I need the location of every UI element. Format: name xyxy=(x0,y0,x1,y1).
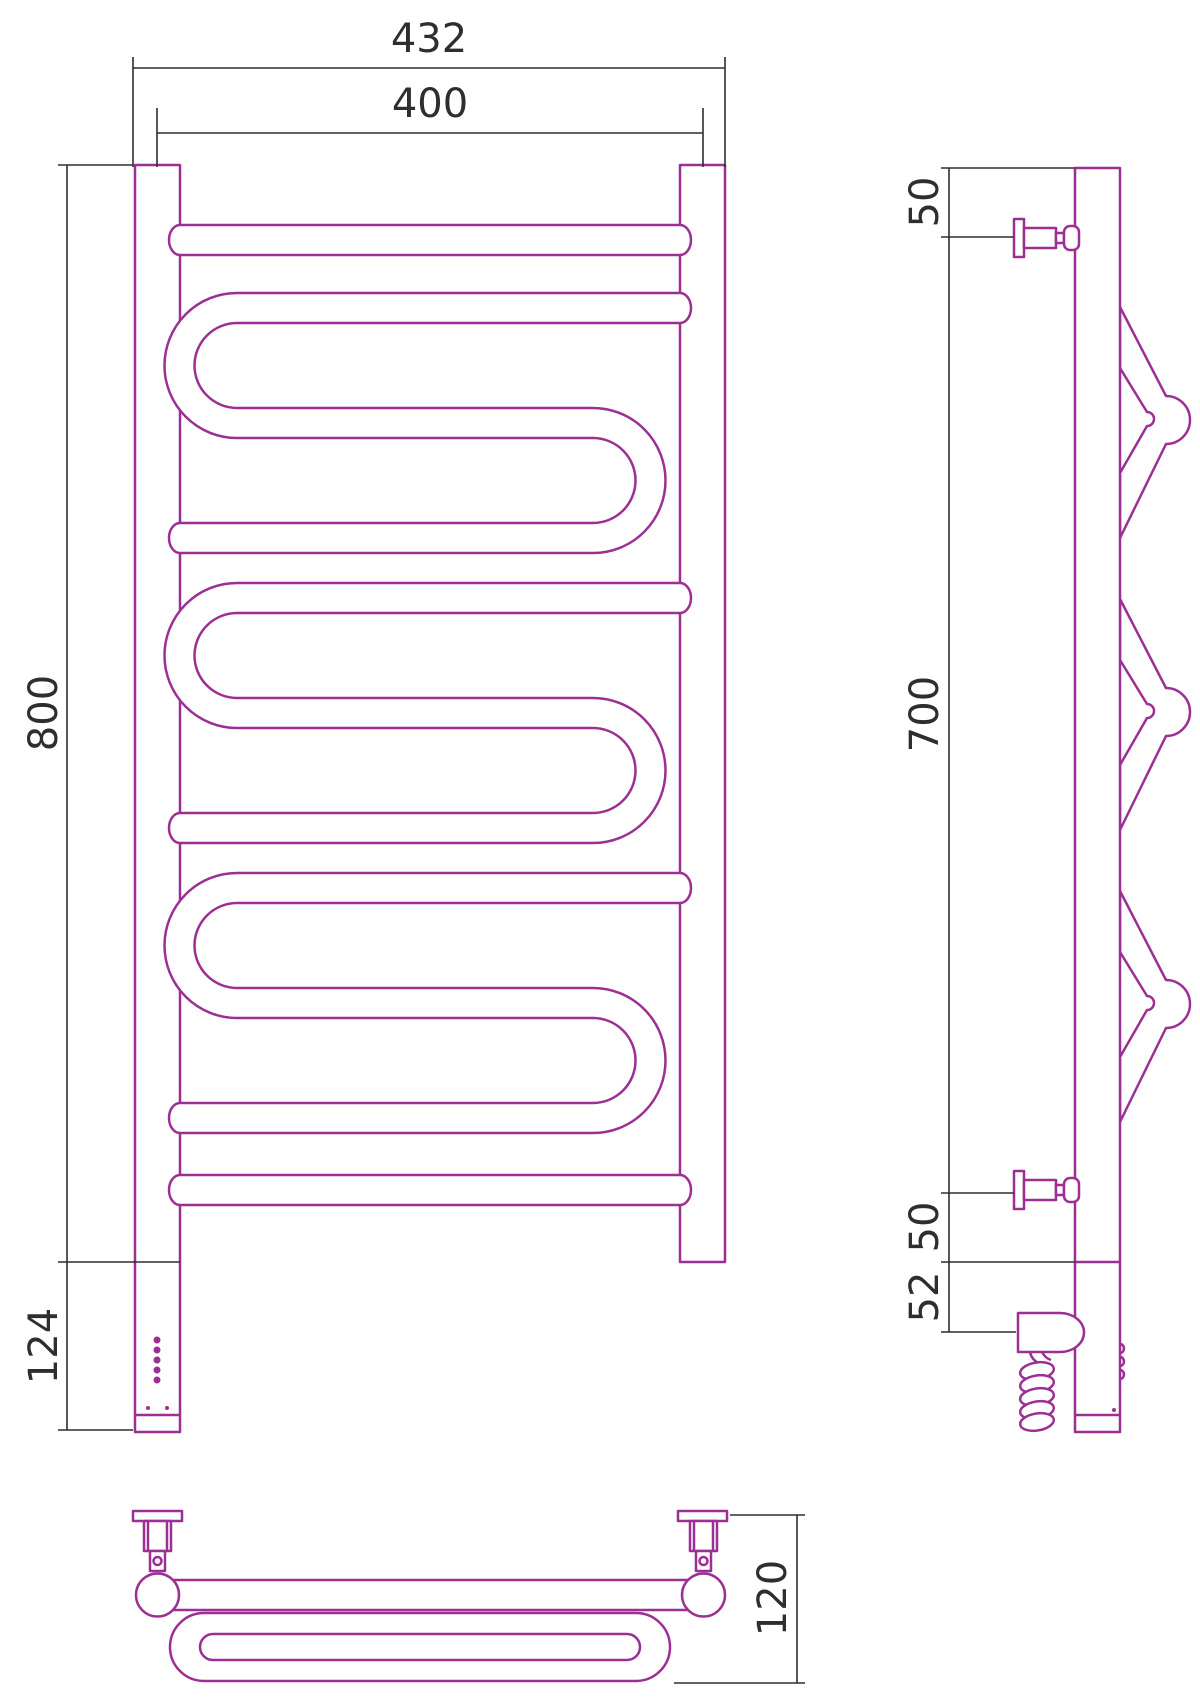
front-view: 432 400 800 124 xyxy=(21,16,725,1432)
side-coil-loops xyxy=(1120,307,1190,1122)
dim-control-height: 124 xyxy=(21,1308,67,1384)
side-loop-1 xyxy=(1120,307,1190,538)
top-rung xyxy=(169,225,691,255)
technical-drawing-page: 432 400 800 124 xyxy=(0,0,1200,1700)
side-view-dimensions: 50 700 50 52 xyxy=(902,168,1075,1332)
screw-dot xyxy=(146,1406,150,1410)
right-post xyxy=(680,165,725,1262)
bracket-wall-plate xyxy=(133,1511,182,1521)
plan-view: 120 xyxy=(133,1511,805,1683)
dim-bracket-span: 700 xyxy=(902,676,948,752)
side-loop-3 xyxy=(1120,891,1190,1122)
led-indicator-dot xyxy=(154,1347,161,1354)
bracket-barrel xyxy=(1024,1180,1056,1200)
towel-rail-technical-drawing: 432 400 800 124 xyxy=(0,0,1200,1700)
bracket-ball xyxy=(1064,1178,1079,1202)
side-loop-2 xyxy=(1120,599,1190,830)
plan-ball-right xyxy=(682,1574,725,1617)
wall-bracket-top xyxy=(1014,219,1079,257)
dim-heater-offset: 52 xyxy=(902,1272,948,1323)
led-indicator-dot xyxy=(154,1357,161,1364)
cable-gland-housing xyxy=(1018,1313,1084,1352)
led-indicator-dot xyxy=(154,1337,161,1344)
plan-bracket-right xyxy=(678,1511,727,1571)
wall-bracket-bottom xyxy=(1014,1171,1079,1209)
dim-height: 800 xyxy=(21,675,67,751)
dim-top-bracket-offset: 50 xyxy=(902,177,948,228)
serpentine-coil xyxy=(165,293,692,1133)
bracket-wall-plate xyxy=(1014,1171,1024,1209)
side-post xyxy=(1075,168,1120,1432)
plan-ball-left xyxy=(136,1574,179,1617)
bracket-joint-pin xyxy=(700,1557,708,1565)
dim-overall-width: 432 xyxy=(391,16,467,62)
side-screw-dot xyxy=(1112,1408,1116,1412)
coil-section-2 xyxy=(165,583,692,843)
bracket-barrel xyxy=(1024,228,1056,248)
dim-depth: 120 xyxy=(750,1560,796,1636)
bracket-wall-plate xyxy=(1014,219,1024,257)
bracket-wall-plate xyxy=(678,1511,727,1521)
bracket-ball xyxy=(1064,226,1079,250)
coil-loop-inner xyxy=(200,1634,640,1660)
power-cord-coil xyxy=(1019,1360,1055,1433)
coil-section-3 xyxy=(165,873,692,1133)
plan-rail-bar xyxy=(150,1580,710,1610)
led-indicator-dot xyxy=(154,1377,161,1384)
bracket-joint-pin xyxy=(154,1557,162,1565)
dim-mount-width: 400 xyxy=(392,81,468,127)
side-view: 50 700 50 52 xyxy=(902,168,1190,1433)
dim-bottom-bracket-offset: 50 xyxy=(902,1202,948,1253)
bottom-rung xyxy=(169,1175,691,1205)
screw-dot xyxy=(165,1406,169,1410)
led-indicator-dot xyxy=(154,1367,161,1374)
plan-bracket-left xyxy=(133,1511,182,1571)
coil-section-1 xyxy=(165,293,692,553)
